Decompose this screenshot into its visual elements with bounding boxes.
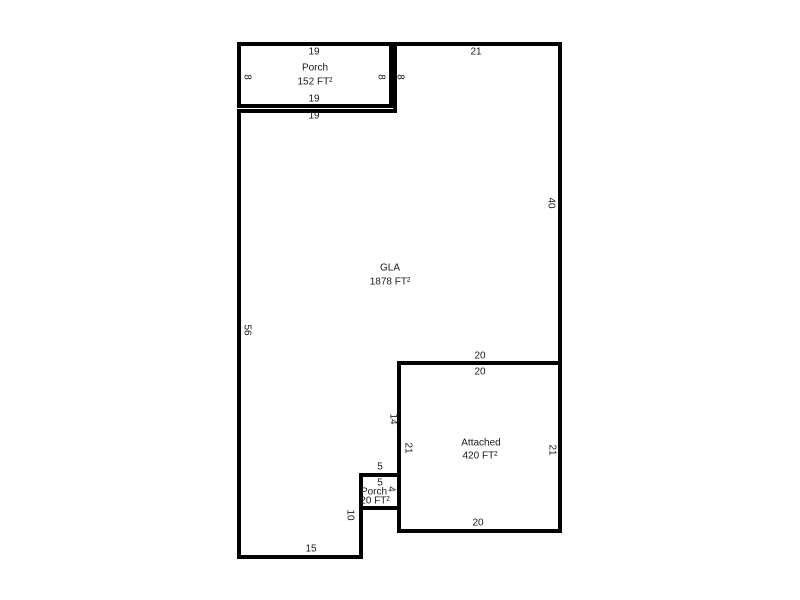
- dim-gla-bottom-right-width: 20: [474, 351, 485, 362]
- dim-porch-left-height: 8: [242, 74, 253, 80]
- dim-gla-top-left-width: 19: [308, 111, 319, 122]
- dim-gla-east-lower-height: 14: [388, 413, 399, 424]
- dim-attached-bottom-width: 20: [472, 518, 483, 529]
- dim-gla-step-width: 5: [377, 462, 383, 473]
- dim-porch-top-width: 19: [308, 47, 319, 58]
- floor-plan-drawing: [0, 0, 800, 600]
- dim-porch-bottom-width: 19: [308, 94, 319, 105]
- dim-attached-right-height: 21: [547, 444, 558, 455]
- dim-gla-porch-side-height: 10: [345, 509, 356, 520]
- porch-top-name: Porch: [302, 63, 328, 74]
- attached-name: Attached: [461, 438, 500, 449]
- dim-porch-small-right-height: 4: [386, 486, 397, 492]
- dim-gla-bottom-width: 15: [305, 544, 316, 555]
- gla-name: GLA: [380, 263, 400, 274]
- porch-top-area: 152 FT²: [297, 77, 332, 88]
- dim-porch-right-height: 8: [376, 74, 387, 80]
- gla-area: 1878 FT²: [370, 277, 411, 288]
- sketch-canvas: 19 Porch 152 FT² 8 8 8 19 19 21 40 56 GL…: [0, 0, 800, 600]
- dim-top-right-width: 21: [470, 47, 481, 58]
- attached-area: 420 FT²: [462, 451, 497, 462]
- dim-left-side-height: 56: [242, 324, 253, 335]
- porch-small-area: 20 FT²: [360, 496, 389, 507]
- dim-gla-west-upper-height: 8: [395, 74, 406, 80]
- dim-attached-left-height: 21: [403, 442, 414, 453]
- dim-attached-top-width: 20: [474, 367, 485, 378]
- dim-right-upper-height: 40: [546, 197, 557, 208]
